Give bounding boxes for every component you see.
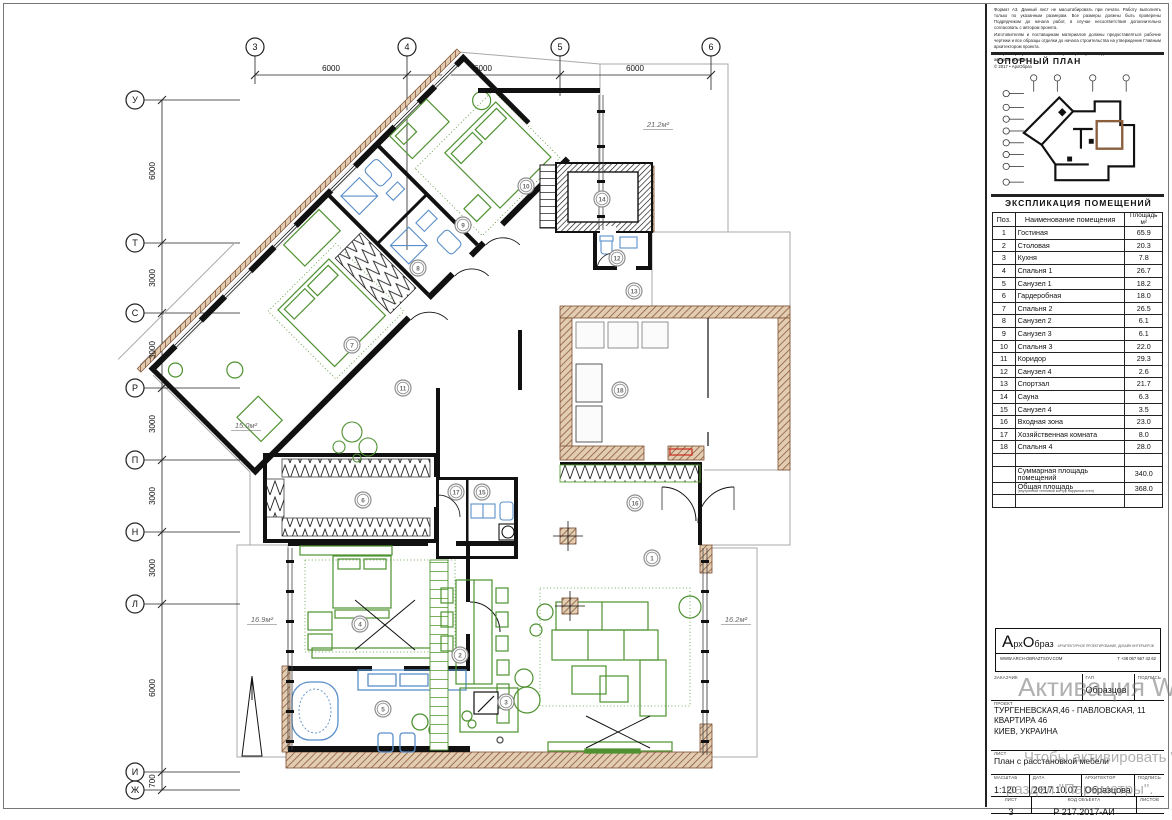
entrance-doors	[438, 487, 734, 632]
grid-label: У	[132, 95, 138, 105]
dimension-value: 6000	[626, 64, 644, 73]
dining-kitchen	[430, 560, 518, 750]
living-furniture	[514, 588, 701, 753]
flue-shaft	[242, 676, 262, 756]
utility-fixtures	[471, 502, 517, 540]
dimension-value: 3000	[148, 559, 157, 577]
logo-contacts: WWW.ARCH-OBRAZTSOV.COM Т +38 067 567 42 …	[996, 653, 1160, 663]
room-number: 10	[522, 183, 530, 190]
table-row: 7Спальня 226.5	[993, 302, 1163, 315]
room-number: 8	[416, 265, 420, 272]
divider	[991, 194, 1164, 197]
table-row: 8Санузел 26.1	[993, 315, 1163, 328]
room-number: 18	[616, 387, 624, 394]
grid-label: 5	[557, 42, 562, 52]
titleblock-sheet: ЛИСТ План с расстановкой мебели	[991, 750, 1164, 775]
table-row: 14Сауна6.3	[993, 390, 1163, 403]
diagonal-wing	[118, 34, 588, 504]
explication-title: ЭКСПЛИКАЦИЯ ПОМЕЩЕНИЙ	[1005, 198, 1152, 208]
table-row: 4Спальня 126.7	[993, 265, 1163, 278]
room-number: 9	[461, 222, 465, 229]
bath1-fixtures	[292, 670, 503, 752]
grid-label: Н	[132, 527, 139, 537]
archobraz-logo: АрхОбраз АРХИТЕКТУРНОЕ ПРОЕКТИРОВАНИЕ, Д…	[996, 629, 1160, 650]
table-row: 9Санузел 36.1	[993, 327, 1163, 340]
dimension-value: 3000	[148, 269, 157, 287]
wing-doors	[411, 228, 521, 338]
area-label: 21.2м²	[646, 120, 670, 129]
table-row: 13Спортзал21.7	[993, 378, 1163, 391]
logo-tagline: АРХИТЕКТУРНОЕ ПРОЕКТИРОВАНИЕ, ДИЗАЙН ИНТ…	[1058, 644, 1154, 648]
grid-label: Т	[132, 238, 138, 248]
wardrobe-room-strips	[266, 459, 430, 536]
room-number: 5	[381, 706, 385, 713]
scale-value: 1:120	[994, 785, 1017, 795]
grid-label: 4	[404, 42, 409, 52]
project-line1: ТУРГЕНЕВСКАЯ,46 - ПАВЛОВСКАЯ, 11	[994, 706, 1161, 716]
table-row: Общая площадь(внутренний тепловой контур…	[993, 482, 1163, 495]
project-line2: КВАРТИРА 46	[994, 716, 1161, 726]
room-number: 14	[598, 196, 606, 203]
table-row: 16Входная зона23.0	[993, 416, 1163, 429]
room-number: 7	[350, 342, 354, 349]
floor-plan-drawing: 3456 УТСРПНЛИЖ 600060006000 600030003000…	[0, 0, 985, 812]
dimension-value: 6000	[148, 679, 157, 697]
disclaimer-p1: Формат А3. Данный лист не масштабировать…	[994, 7, 1161, 31]
grid-label: П	[132, 455, 138, 465]
table-row: 3Кухня7.8	[993, 252, 1163, 265]
table-row: 1Гостиная65.9	[993, 227, 1163, 240]
object-code: Р 217.2017-АИ	[1053, 807, 1115, 817]
right-panel: Формат А3. Данный лист не масштабировать…	[985, 4, 1168, 807]
room-number: 2	[458, 652, 462, 659]
room-number: 1	[650, 555, 654, 562]
col-header-name: Наименование помещения	[1015, 213, 1125, 227]
grid-label: Л	[132, 599, 138, 609]
dimension-value: 6000	[322, 64, 340, 73]
wing-wardrobe	[335, 233, 416, 314]
table-row: 10Спальня 322.0	[993, 340, 1163, 353]
room-number: 11	[400, 385, 407, 392]
grid-label: 3	[252, 42, 257, 52]
dimension-value: 3000	[148, 341, 157, 359]
gap-name: Образцов	[1086, 685, 1127, 695]
logo-box: АрхОбраз АРХИТЕКТУРНОЕ ПРОЕКТИРОВАНИЕ, Д…	[995, 628, 1161, 672]
dimension-labels-top: 600060006000	[322, 64, 644, 73]
entry-wardrobe	[560, 465, 700, 482]
dimension-value: 3000	[148, 415, 157, 433]
room-number: 12	[613, 255, 621, 262]
table-row: 11Коридор29.3	[993, 353, 1163, 366]
room-number: 3	[504, 699, 508, 706]
area-labels: 21.2м²15.0м²16.9м²16.2м²	[231, 120, 751, 625]
table-row: Суммарная площадь помещений340.0	[993, 466, 1163, 482]
wing-dividers	[325, 142, 478, 295]
columns	[553, 521, 585, 621]
disclaimer-p2: Изготовителям и поставщикам материалов д…	[994, 32, 1161, 50]
room18-interior	[576, 318, 708, 455]
room-number: 4	[358, 621, 362, 628]
dimension-value: 700	[148, 774, 157, 788]
titleblock-project: ПРОЕКТ ТУРГЕНЕВСКАЯ,46 - ПАВЛОВСКАЯ, 11 …	[991, 700, 1164, 751]
grid-label: 6	[708, 42, 713, 52]
grid-label: И	[132, 767, 138, 777]
room-number: 15	[478, 489, 486, 496]
table-row: 12Санузел 42.6	[993, 365, 1163, 378]
website: WWW.ARCH-OBRAZTSOV.COM	[1000, 656, 1062, 661]
table-row: 17Хозяйственная комната8.0	[993, 428, 1163, 441]
col-header-area: Площадьм²	[1125, 213, 1163, 227]
table-row: 6Гардеробная18.0	[993, 290, 1163, 303]
divider	[991, 52, 1164, 55]
dimension-value: 3000	[148, 487, 157, 505]
grid-bubbles-top: 3456	[246, 38, 720, 56]
phone: Т +38 067 567 42 62	[1117, 656, 1156, 661]
room-number: 17	[452, 489, 460, 496]
sheet-title: План с расстановкой мебели	[994, 756, 1161, 766]
table-row: 2Столовая20.3	[993, 239, 1163, 252]
dimension-labels-left: 6000300030003000300030006000700	[148, 162, 157, 788]
area-label: 15.0м²	[235, 421, 258, 430]
grid-label: С	[132, 308, 139, 318]
area-label: 16.2м²	[725, 615, 748, 624]
sheet-number: 3	[1008, 807, 1013, 817]
dimension-value: 6000	[474, 64, 492, 73]
titleblock-row-customer: ЗАКАЗЧИК ГАП Образцов ПОДПИСЬ	[991, 674, 1164, 701]
reference-plan-title: ОПОРНЫЙ ПЛАН	[997, 56, 1081, 66]
reference-plan-thumbnail	[997, 70, 1157, 190]
area-label: 16.9м²	[251, 615, 274, 624]
explication-table: Поз. Наименование помещения Площадьм² 1Г…	[992, 212, 1163, 508]
table-row: 5Санузел 118.2	[993, 277, 1163, 290]
table-row	[993, 495, 1163, 508]
grid-label: Ж	[131, 785, 140, 795]
room-number: 13	[630, 288, 638, 295]
col-header-pos: Поз.	[993, 213, 1016, 227]
grid-bubbles-left: УТСРПНЛИЖ	[126, 91, 144, 799]
table-row: 18Спальня 428.0	[993, 441, 1163, 454]
grid-label: Р	[132, 383, 138, 393]
table-row	[993, 453, 1163, 466]
dimension-value: 6000	[148, 162, 157, 180]
room-number: 16	[631, 500, 639, 507]
project-line3: КИЕВ, УКРАИНА	[994, 727, 1161, 737]
architect-value: Образцова	[1085, 785, 1131, 795]
date-value: 2017.10.07	[1033, 785, 1078, 795]
titleblock-row-scale: МАСШТАБ 1:120 ДАТА 2017.10.07 АРХИТЕКТОР…	[991, 774, 1164, 797]
titleblock-row-code: ЛИСТ 3 КОД ОБЪЕКТА Р 217.2017-АИ ЛИСТОВ	[991, 796, 1164, 814]
table-row: 15Санузел 43.5	[993, 403, 1163, 416]
room-number: 6	[361, 497, 365, 504]
